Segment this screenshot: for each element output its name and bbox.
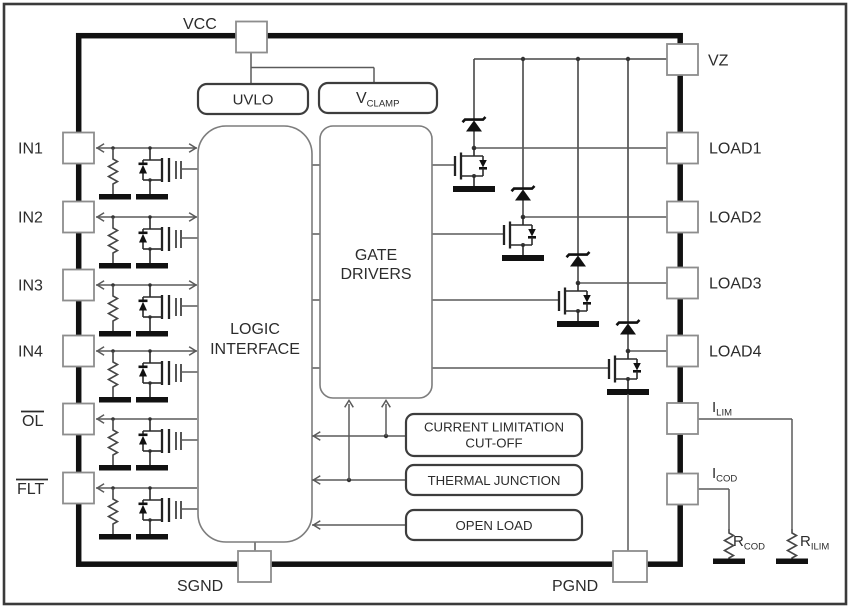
pin-in2 bbox=[63, 202, 94, 233]
pin-in4 bbox=[63, 336, 94, 367]
pin-sgnd bbox=[238, 551, 271, 582]
pin-load2 bbox=[667, 202, 698, 233]
pin-flt bbox=[63, 473, 94, 504]
pin-ol bbox=[63, 404, 94, 435]
thermal-junction-label: THERMAL JUNCTION bbox=[428, 473, 561, 488]
pin-load4-label: LOAD4 bbox=[709, 344, 762, 361]
pin-ilim-label: ILIM bbox=[712, 399, 732, 419]
input-esd-cell-icon bbox=[96, 415, 198, 471]
zener-diode-icon bbox=[512, 186, 535, 217]
rcod-label: RCOD bbox=[733, 533, 765, 553]
input-esd-cell-icon bbox=[96, 213, 198, 269]
power-mosfet-icon bbox=[557, 281, 599, 327]
input-esd-cell-icon bbox=[96, 347, 198, 403]
input-esd-cell-icon bbox=[96, 484, 198, 540]
pin-vcc-label: VCC bbox=[183, 16, 217, 33]
pin-sgnd-label: SGND bbox=[177, 578, 223, 595]
pin-pgnd-label: PGND bbox=[552, 578, 598, 595]
pin-icod-label: ICOD bbox=[712, 465, 737, 485]
pin-load3 bbox=[667, 268, 698, 299]
zener-diode-icon bbox=[617, 320, 640, 351]
protection-signals bbox=[312, 400, 406, 529]
pin-in4-label: IN4 bbox=[18, 344, 43, 361]
zener-diode-icon bbox=[567, 252, 590, 283]
power-mosfet-icon bbox=[502, 215, 544, 261]
pin-ilim bbox=[667, 403, 698, 434]
open-load-label: OPEN LOAD bbox=[456, 518, 533, 533]
power-mosfet-icon bbox=[453, 146, 495, 192]
pin-vz-label: VZ bbox=[708, 53, 729, 70]
pin-ol-label: OL bbox=[22, 413, 43, 430]
logic-interface-label-2: INTERFACE bbox=[210, 341, 300, 358]
current-limitation-label-2: CUT-OFF bbox=[465, 436, 522, 451]
pin-in1-label: IN1 bbox=[18, 141, 43, 158]
pin-load4 bbox=[667, 336, 698, 367]
diagram-canvas: UVLO VCLAMP LOGIC INTERFACE GATE DRIVERS… bbox=[0, 0, 850, 608]
pin-load3-label: LOAD3 bbox=[709, 276, 762, 293]
ground-icon bbox=[713, 559, 745, 565]
pin-in3-label: IN3 bbox=[18, 278, 43, 295]
ground-icon bbox=[776, 559, 808, 565]
pin-in1 bbox=[63, 133, 94, 164]
pin-icod bbox=[667, 474, 698, 505]
pin-in3 bbox=[63, 270, 94, 301]
current-limitation-label-1: CURRENT LIMITATION bbox=[424, 420, 564, 435]
vcc-net bbox=[251, 52, 374, 84]
pin-load2-label: LOAD2 bbox=[709, 210, 762, 227]
rilim-label: RILIM bbox=[800, 533, 829, 553]
pin-vcc bbox=[236, 22, 267, 53]
power-mosfet-icon bbox=[607, 349, 649, 395]
pin-vz bbox=[667, 44, 698, 75]
icod-external-circuit bbox=[698, 489, 745, 564]
input-esd-cell-icon bbox=[96, 144, 198, 200]
pin-flt-label: FLT bbox=[17, 481, 44, 498]
zener-diode-icon bbox=[463, 117, 486, 148]
pin-pgnd bbox=[613, 551, 647, 582]
resistor-icon bbox=[788, 529, 797, 561]
logic-to-gate-stubs bbox=[312, 165, 320, 368]
input-protection-cells bbox=[96, 144, 198, 540]
gate-drivers-label-2: DRIVERS bbox=[340, 266, 411, 283]
block-diagram: UVLO VCLAMP LOGIC INTERFACE GATE DRIVERS… bbox=[0, 0, 850, 608]
logic-interface-label-1: LOGIC bbox=[230, 321, 280, 338]
input-esd-cell-icon bbox=[96, 281, 198, 337]
pin-in2-label: IN2 bbox=[18, 210, 43, 227]
pin-load1-label: LOAD1 bbox=[709, 141, 762, 158]
pin-load1 bbox=[667, 133, 698, 164]
gate-drivers-label-1: GATE bbox=[355, 247, 397, 264]
uvlo-label: UVLO bbox=[233, 92, 274, 109]
